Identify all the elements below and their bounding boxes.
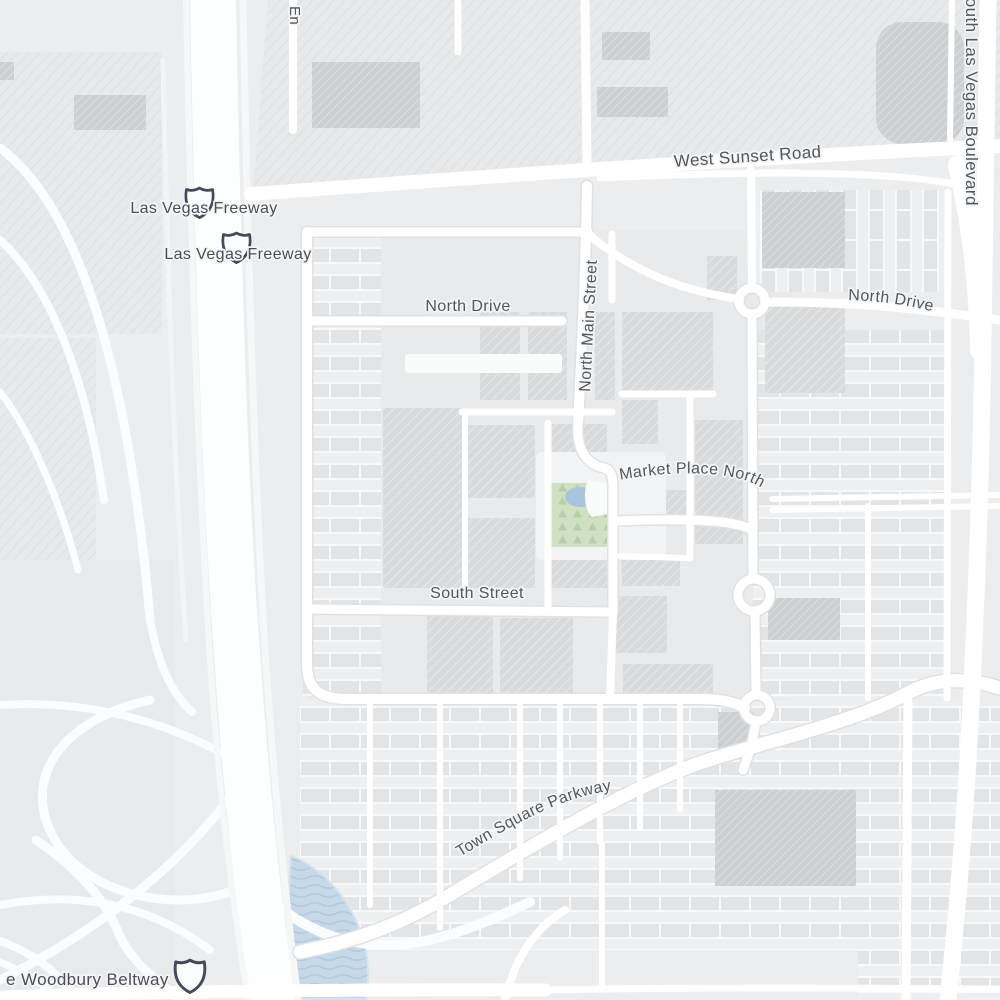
map-viewport[interactable]: En West Sunset Road South Las Vegas Boul… (0, 0, 1000, 1000)
parking-rows-southeast (858, 705, 1000, 1000)
street-label-south-las-vegas-boulevard: South Las Vegas Boulevard (962, 0, 981, 206)
parking-rows-west (303, 236, 381, 696)
street-label-partial: En (286, 6, 303, 25)
street-label-north-drive-west: North Drive (425, 298, 510, 315)
road-label-woodbury-beltway: e Woodbury Beltway (6, 970, 169, 989)
anchor-building (383, 408, 462, 588)
road-label-las-vegas-freeway-2: Las Vegas Freeway (164, 246, 311, 263)
street-label-south-street: South Street (430, 585, 524, 602)
parking-area (0, 338, 96, 563)
parking-area (0, 52, 162, 334)
road-label-las-vegas-freeway-1: Las Vegas Freeway (130, 200, 277, 217)
map-canvas[interactable]: En West Sunset Road South Las Vegas Boul… (0, 0, 1000, 1000)
